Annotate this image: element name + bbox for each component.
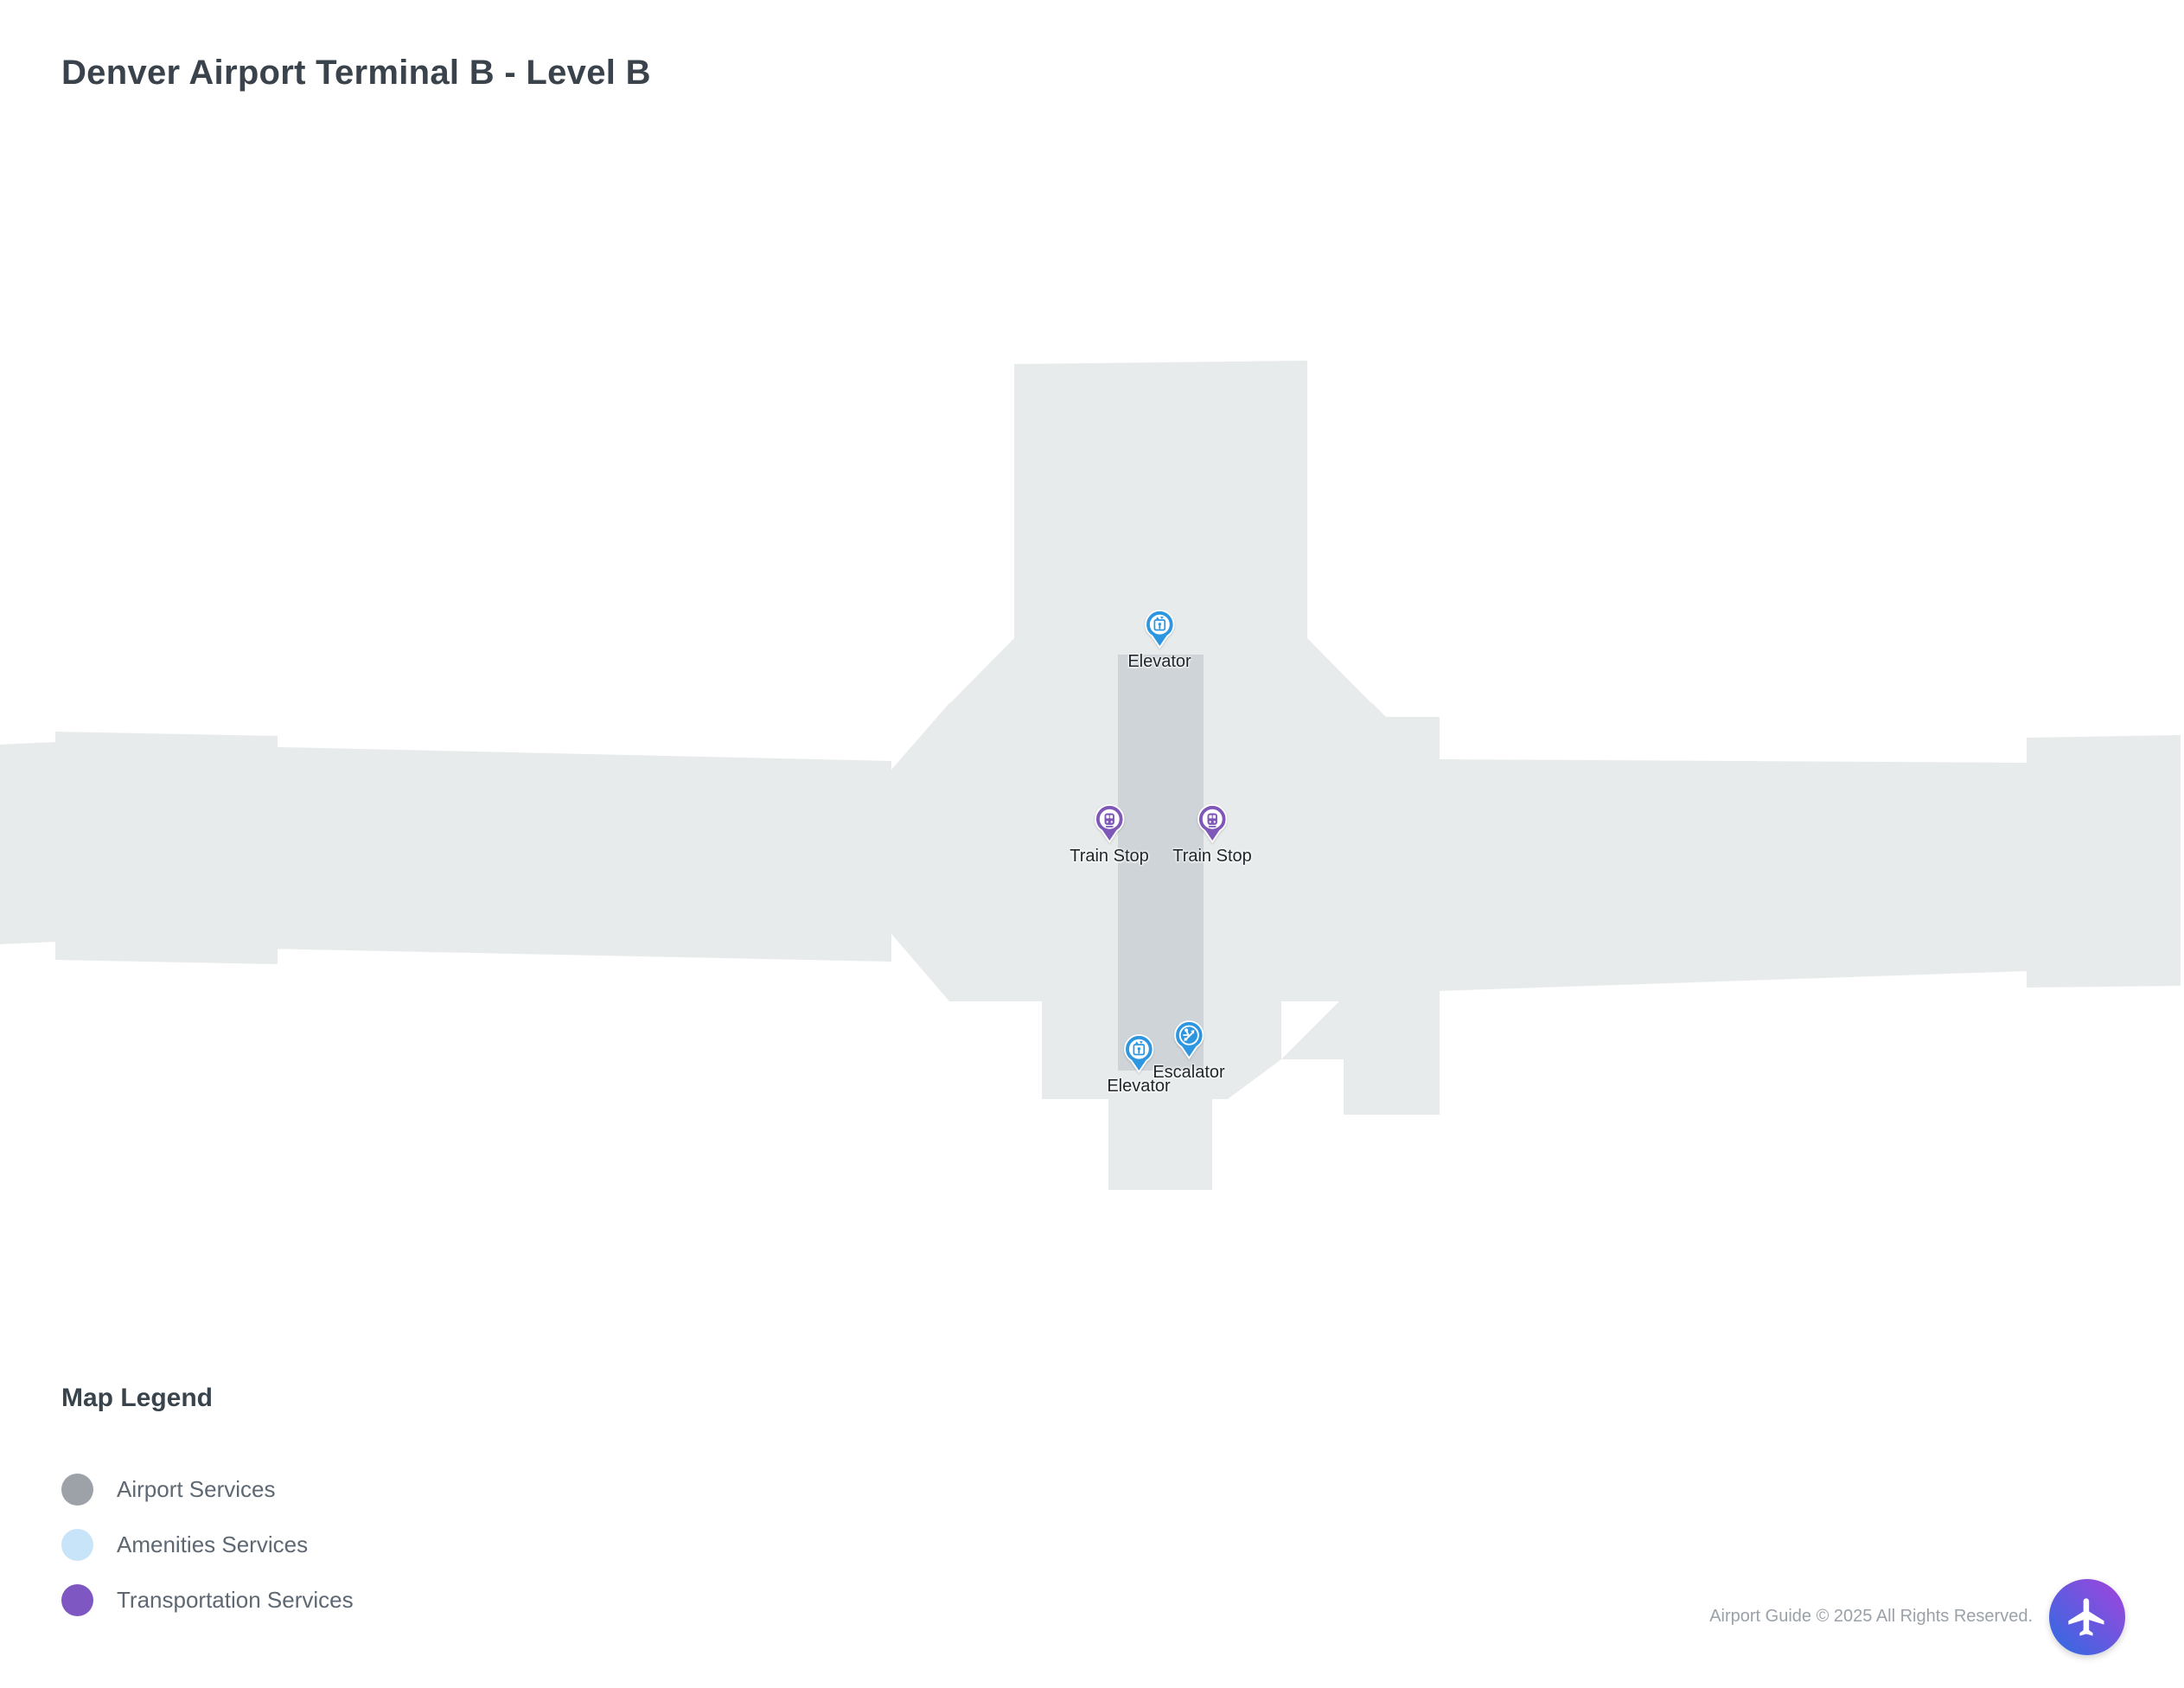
legend-items: Airport Services Amenities Services Tran… xyxy=(61,1474,354,1616)
elevator-icon[interactable] xyxy=(1122,1033,1155,1076)
train-icon[interactable] xyxy=(1196,803,1229,846)
legend-item: Transportation Services xyxy=(61,1584,354,1616)
marker-label: Train Stop xyxy=(1172,847,1252,866)
legend-item: Amenities Services xyxy=(61,1529,354,1561)
marker-label: Elevator xyxy=(1127,652,1191,672)
legend-color-dot xyxy=(61,1474,93,1506)
airplane-icon xyxy=(2065,1595,2110,1640)
train-icon[interactable] xyxy=(1093,803,1126,846)
legend-title: Map Legend xyxy=(61,1384,354,1413)
airport-guide-button[interactable] xyxy=(2049,1579,2125,1655)
marker-label: Escalator xyxy=(1153,1063,1224,1083)
legend-color-dot xyxy=(61,1584,93,1616)
map-marker-escalator-south: Escalator xyxy=(1153,1020,1224,1083)
elevator-icon[interactable] xyxy=(1143,609,1176,651)
legend-item-label: Amenities Services xyxy=(117,1531,308,1558)
legend-color-dot xyxy=(61,1529,93,1561)
map-marker-train-stop-west: Train Stop xyxy=(1070,803,1149,866)
escalator-icon[interactable] xyxy=(1172,1020,1205,1062)
marker-label: Train Stop xyxy=(1070,847,1149,866)
legend-item-label: Transportation Services xyxy=(117,1587,354,1614)
legend-item: Airport Services xyxy=(61,1474,354,1506)
legend-item-label: Airport Services xyxy=(117,1476,276,1503)
map-marker-elevator-north: Elevator xyxy=(1127,609,1191,672)
copyright-text: Airport Guide © 2025 All Rights Reserved… xyxy=(1709,1607,2033,1627)
map-marker-train-stop-east: Train Stop xyxy=(1172,803,1252,866)
map-legend: Map Legend Airport Services Amenities Se… xyxy=(61,1384,354,1640)
